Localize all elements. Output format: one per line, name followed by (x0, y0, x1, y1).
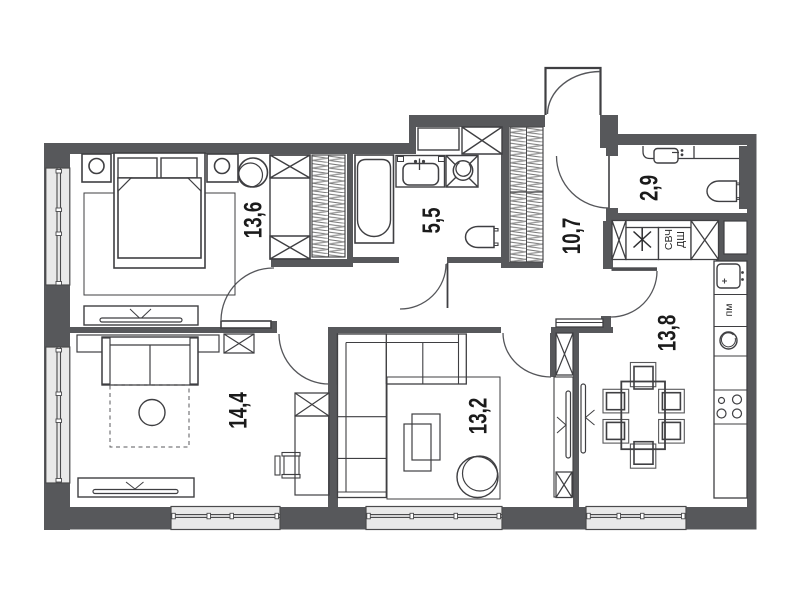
svg-text:СВЧ: СВЧ (663, 229, 675, 250)
svg-text:пм: пм (723, 304, 735, 317)
svg-text:10,7: 10,7 (557, 218, 585, 254)
svg-text:2,9: 2,9 (635, 175, 663, 201)
svg-text:ДШ: ДШ (675, 231, 687, 248)
svg-text:14,4: 14,4 (224, 392, 252, 429)
svg-text:5,5: 5,5 (417, 207, 445, 233)
svg-text:13,6: 13,6 (239, 202, 267, 238)
svg-text:13,8: 13,8 (653, 315, 681, 351)
svg-text:13,2: 13,2 (464, 398, 492, 434)
